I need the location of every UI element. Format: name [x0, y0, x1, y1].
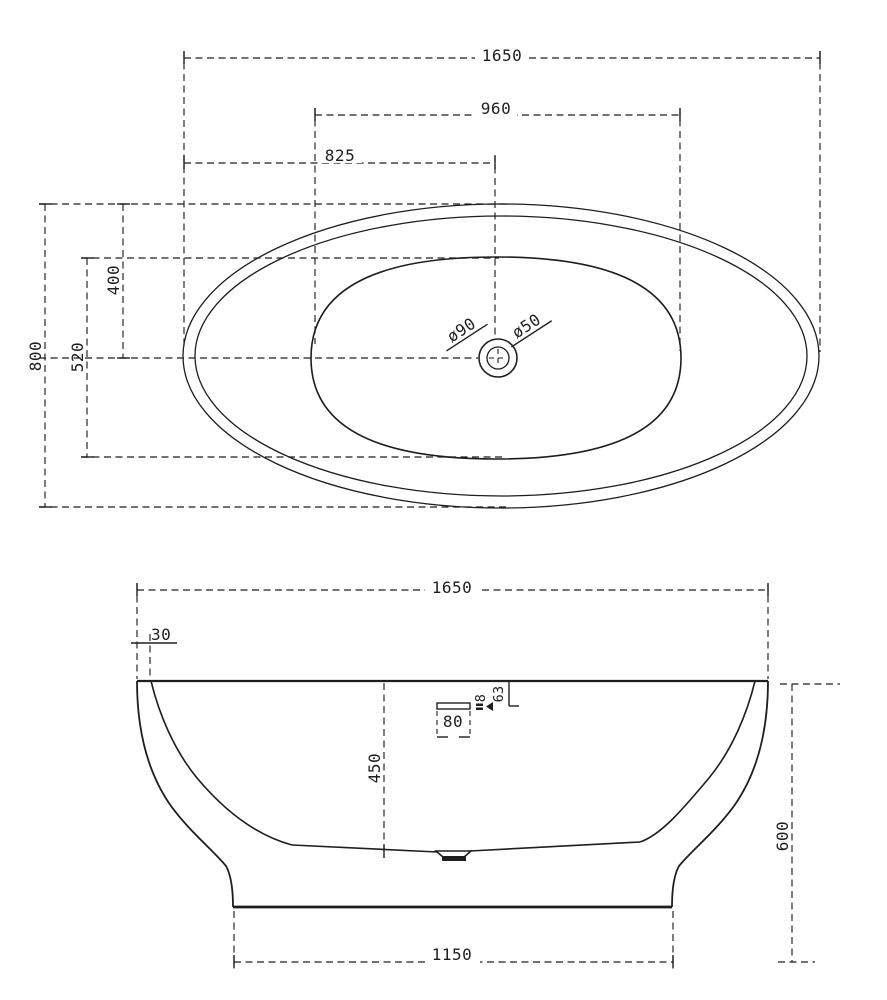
dim-label-450: 450	[365, 753, 384, 783]
side-dim-base-length: 1150	[234, 945, 673, 968]
outer-wall-right	[672, 681, 768, 907]
thickness-mark	[476, 708, 483, 711]
drain	[479, 339, 517, 377]
rotated-label-wrap: 800	[26, 341, 45, 371]
side-dim-length-overall: 1650	[137, 576, 768, 597]
outer-wall-left	[137, 681, 233, 907]
rotated-label-wrap: 8	[473, 694, 489, 702]
dim-label-825: 825	[325, 146, 355, 165]
side-dim-rim-thickness: 30	[131, 625, 177, 644]
floor-line-right	[470, 842, 640, 851]
rotated-label-wrap: 63	[491, 686, 507, 703]
dim-label-960: 960	[481, 99, 511, 118]
top-dim-width-overall: 800	[26, 204, 52, 507]
rotated-label-wrap: 450	[365, 753, 384, 783]
dim-label-63: 63	[491, 686, 507, 703]
side-dim-overflow-width: 80	[437, 711, 470, 737]
drain-label-outer: ø90	[436, 308, 487, 351]
top-dim-width-half: 400	[104, 204, 130, 358]
side-dim-overflow-offset: 63	[491, 682, 519, 706]
inner-wall-right	[640, 681, 755, 842]
top-dim-length-half: 825	[184, 146, 495, 169]
drain-plug	[442, 856, 466, 861]
dim-label-1650-top: 1650	[482, 46, 523, 65]
dim-label-400: 400	[104, 265, 123, 295]
drain-label-inner: ø50	[501, 305, 552, 347]
dim-label-600: 600	[773, 821, 792, 851]
dim-label-8: 8	[473, 694, 489, 702]
side-view: 1650 30 450 600	[131, 576, 840, 969]
technical-drawing-page: 1650 960 825 800	[0, 0, 887, 1000]
side-dim-depth: 450	[365, 683, 384, 858]
dim-label-800: 800	[26, 341, 45, 371]
top-extension-lines-vertical	[184, 51, 820, 352]
dim-label-520: 520	[68, 342, 87, 372]
overflow-slot	[437, 703, 470, 709]
floor-line-left	[292, 845, 437, 852]
rotated-label-wrap: 600	[773, 821, 792, 851]
dim-label-80: 80	[443, 712, 463, 731]
dim-label-1650-side: 1650	[432, 578, 473, 597]
top-dim-length-overall: 1650	[184, 44, 820, 65]
bathtub-technical-drawing: 1650 960 825 800	[0, 0, 887, 1000]
inner-wall-left	[151, 681, 292, 845]
side-dim-overflow-thickness: 8	[473, 694, 493, 711]
dim-label-1150: 1150	[432, 945, 473, 964]
rotated-label-wrap: 520	[68, 342, 87, 372]
rotated-label-wrap: 400	[104, 265, 123, 295]
top-dim-length-inner: 960	[315, 99, 680, 121]
tub-inner-rim-ellipse	[195, 216, 807, 496]
side-dim-height: 600	[773, 684, 840, 962]
tub-outer-rim-ellipse	[183, 204, 819, 508]
top-view: 1650 960 825 800	[26, 44, 820, 508]
bottom-drain	[436, 851, 471, 861]
side-extension-lines	[137, 584, 768, 969]
thickness-mark	[476, 704, 483, 707]
dim-label-30: 30	[151, 625, 171, 644]
